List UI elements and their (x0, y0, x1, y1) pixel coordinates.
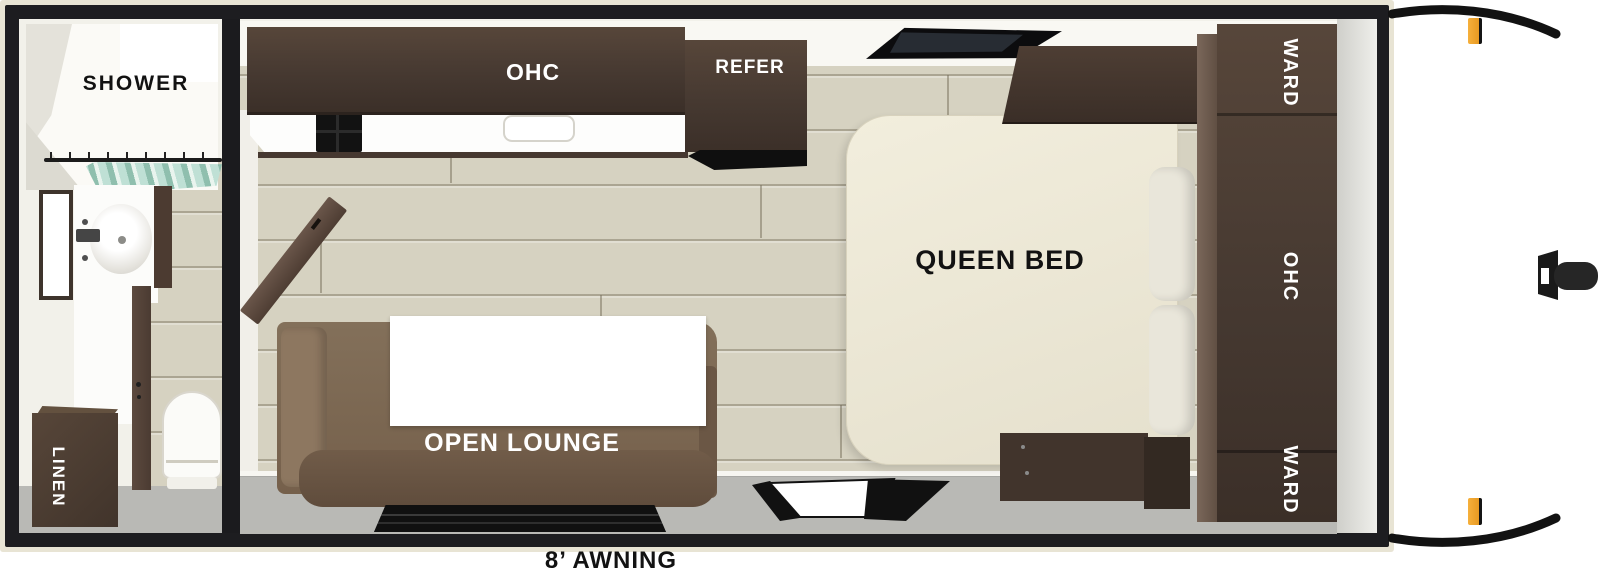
linen-cabinet (32, 413, 118, 527)
plank-seam (760, 185, 762, 238)
wardrobe-bottom-label: WARD (1272, 432, 1300, 528)
entry-door-threshold (748, 477, 953, 525)
queen-bed-label: QUEEN BED (860, 247, 1140, 274)
wardrobe-top-label: WARD (1272, 25, 1300, 121)
clearance-light-top (1468, 18, 1482, 44)
sink-drain (118, 236, 126, 244)
bedroom-overhead-cabinet-label: OHC (1272, 249, 1300, 305)
faucet (76, 229, 100, 242)
shower-label: SHOWER (46, 73, 226, 94)
bathroom-door (132, 286, 151, 490)
kitchen-counter-edge (258, 152, 688, 158)
mirror (39, 190, 73, 300)
linen-label: LINEN (47, 432, 67, 522)
wardrobe-column-side-face (1197, 34, 1219, 522)
bed-head-cabinet (1002, 46, 1216, 124)
shower-curtain-rod (44, 158, 222, 162)
front-wall-band (1337, 19, 1377, 533)
bed-pillow-top (1149, 167, 1195, 301)
lounge-table (390, 316, 706, 426)
under-bed-cabinet-screw-1 (1021, 445, 1025, 449)
entry-step-mat (374, 505, 666, 532)
sofa-seat-bolster (299, 450, 717, 507)
bathroom-divider-wall (222, 19, 240, 533)
overhead-cabinet (247, 27, 685, 115)
under-bed-cabinet-corner (1144, 437, 1190, 509)
kitchen-sink (503, 115, 575, 142)
cooktop (316, 112, 362, 152)
open-lounge-label: OPEN LOUNGE (391, 431, 653, 456)
plank-seam (320, 240, 322, 293)
overhead-cabinet-label: OHC (483, 61, 583, 84)
faucet-handle-bottom (82, 255, 88, 261)
floorplan-canvas: SHOWER LINEN OHC REFER (0, 0, 1600, 574)
refrigerator-label: REFER (690, 58, 810, 77)
bathroom-side-cabinet (154, 186, 172, 288)
door-hinge-dot-1 (136, 382, 141, 387)
plank-seam (840, 405, 842, 458)
toilet-base (167, 477, 217, 489)
vanity-counter-lower (74, 300, 136, 424)
toilet-bowl (162, 391, 222, 479)
awning-label: 8’ AWNING (451, 549, 771, 573)
hitch-coupler (1554, 262, 1598, 290)
faucet-handle-top (82, 219, 88, 225)
under-bed-cabinet (1000, 433, 1148, 501)
toilet-seat-line (166, 460, 218, 463)
under-bed-cabinet-screw-2 (1025, 471, 1029, 475)
clearance-light-bottom (1468, 498, 1482, 525)
queen-bed (846, 115, 1178, 465)
door-hinge-dot-2 (137, 395, 141, 399)
bed-pillow-bottom (1149, 305, 1195, 435)
front-cap-profile (1388, 0, 1600, 574)
